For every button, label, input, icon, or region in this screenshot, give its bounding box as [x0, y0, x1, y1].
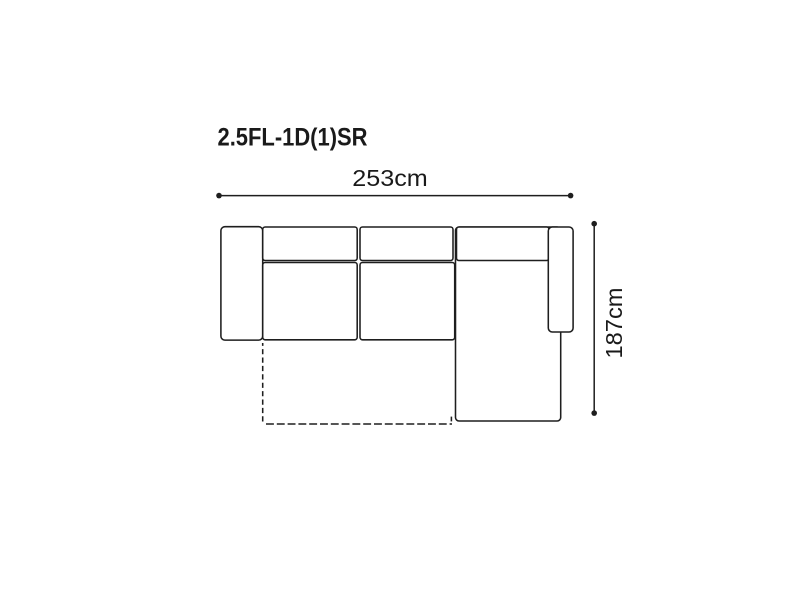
svg-text:253cm: 253cm: [352, 165, 428, 191]
svg-text:2.5FL-1D(1)SR: 2.5FL-1D(1)SR: [218, 125, 368, 152]
svg-text:187cm: 187cm: [601, 288, 627, 359]
